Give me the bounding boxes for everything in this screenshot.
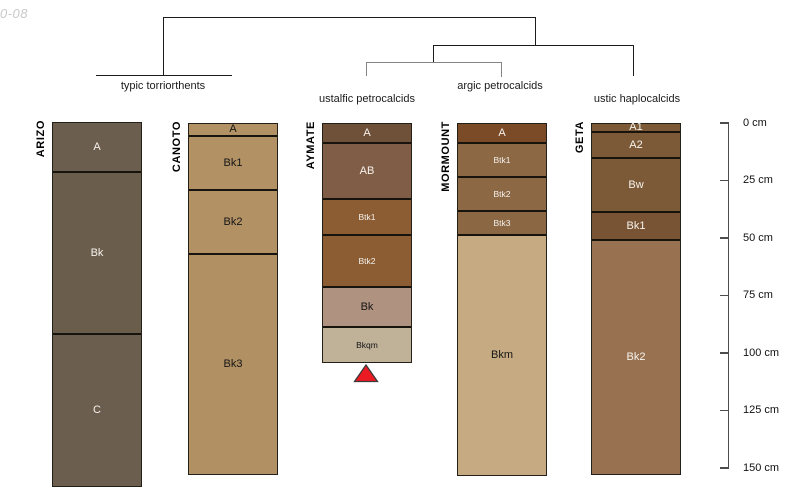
cluster-label-argic: argic petrocalcids xyxy=(457,80,543,92)
dendrogram-geta-drop xyxy=(633,45,634,76)
cluster-label-ustic: ustic haplocalcids xyxy=(594,93,680,105)
depth-tick-label-75: 75 cm xyxy=(743,289,773,301)
dendrogram-group-bar xyxy=(433,45,634,46)
horizon-aymate-ab: AB xyxy=(323,142,411,198)
horizon-geta-bk1: Bk1 xyxy=(592,211,680,239)
depth-tick-125 xyxy=(720,410,729,411)
horizon-mormount-a: A xyxy=(458,124,546,142)
depth-tick-50 xyxy=(720,237,729,238)
soil-column-arizo: ABkC xyxy=(52,122,142,487)
dendrogram-root-bar xyxy=(163,17,536,18)
horizon-aymate-btk2: Btk2 xyxy=(323,234,411,286)
horizon-canoto-bk2: Bk2 xyxy=(189,189,277,253)
profile-name-arizo: ARIZO xyxy=(35,120,47,157)
depth-tick-100 xyxy=(720,352,729,353)
horizon-mormount-bkm: Bkm xyxy=(458,234,546,475)
watermark-text: 0-08 xyxy=(0,6,28,21)
horizon-arizo-bk: Bk xyxy=(53,171,141,333)
horizon-mormount-btk2: Btk2 xyxy=(458,176,546,210)
horizon-geta-a2: A2 xyxy=(592,131,680,157)
red-triangle-marker-icon xyxy=(352,363,380,384)
depth-tick-label-25: 25 cm xyxy=(743,174,773,186)
dendrogram-petrocalcid-drop xyxy=(433,45,434,63)
horizon-aymate-bkqm: Bkqm xyxy=(323,326,411,362)
soil-column-canoto: ABk1Bk2Bk3 xyxy=(188,123,278,475)
dendrogram-aymate-drop xyxy=(366,62,367,76)
horizon-arizo-a: A xyxy=(53,123,141,171)
horizon-aymate-a: A xyxy=(323,124,411,142)
horizon-geta-bw: Bw xyxy=(592,157,680,211)
depth-tick-0 xyxy=(720,122,729,123)
horizon-arizo-c: C xyxy=(53,333,141,486)
horizon-canoto-a: A xyxy=(189,124,277,135)
depth-tick-label-125: 125 cm xyxy=(743,404,779,416)
depth-tick-label-150: 150 cm xyxy=(743,462,779,474)
depth-tick-label-50: 50 cm xyxy=(743,232,773,244)
dendrogram-typic-bar xyxy=(96,75,232,76)
profile-name-canoto: CANOTO xyxy=(171,121,183,172)
dendrogram-mormount-drop xyxy=(501,62,502,77)
depth-tick-25 xyxy=(720,180,729,181)
horizon-aymate-bk: Bk xyxy=(323,286,411,326)
soil-profile-figure: 0-08 typic torriorthentsustalfic petroca… xyxy=(0,0,800,500)
profile-name-aymate: AYMATE xyxy=(305,121,317,169)
dendrogram-pair-bar xyxy=(366,62,502,63)
horizon-canoto-bk1: Bk1 xyxy=(189,135,277,189)
dendrogram-right-drop xyxy=(535,17,536,46)
depth-tick-150 xyxy=(720,467,729,468)
horizon-canoto-bk3: Bk3 xyxy=(189,253,277,474)
dendrogram-left-drop xyxy=(163,17,164,76)
horizon-mormount-btk3: Btk3 xyxy=(458,210,546,234)
soil-column-aymate: AABBtk1Btk2BkBkqm xyxy=(322,123,412,363)
profile-name-geta: GETA xyxy=(574,121,586,153)
soil-column-mormount: ABtk1Btk2Btk3Bkm xyxy=(457,123,547,476)
depth-tick-label-0: 0 cm xyxy=(743,117,767,129)
cluster-label-typic: typic torriorthents xyxy=(121,80,205,92)
horizon-mormount-btk1: Btk1 xyxy=(458,142,546,176)
cluster-label-ustalfic: ustalfic petrocalcids xyxy=(319,93,415,105)
profile-name-mormount: MORMOUNT xyxy=(440,121,452,192)
horizon-aymate-btk1: Btk1 xyxy=(323,198,411,234)
depth-tick-75 xyxy=(720,295,729,296)
horizon-geta-bk2: Bk2 xyxy=(592,239,680,474)
soil-column-geta: A1A2BwBk1Bk2 xyxy=(591,123,681,475)
horizon-geta-a1: A1 xyxy=(592,124,680,131)
depth-tick-label-100: 100 cm xyxy=(743,347,779,359)
